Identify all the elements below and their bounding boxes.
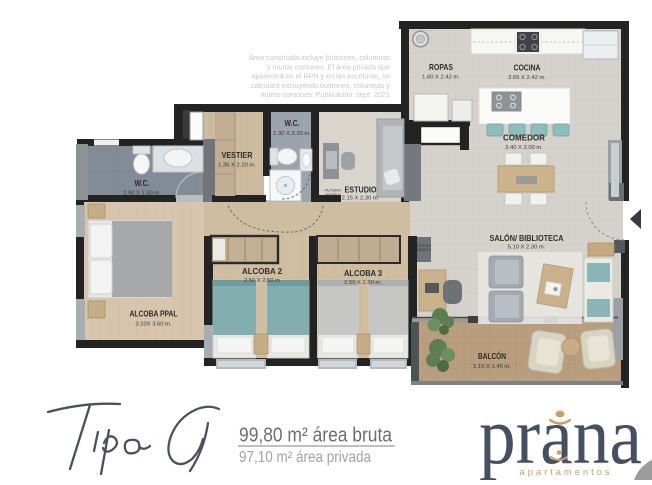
svg-text:3.65 X 2.42 m.: 3.65 X 2.42 m. <box>508 75 546 81</box>
svg-text:3.10X 3.60 m.: 3.10X 3.60 m. <box>135 322 171 328</box>
svg-text:99,80 m² área bruta: 99,80 m² área bruta <box>239 425 393 447</box>
svg-text:2.50 X 2.50 m: 2.50 X 2.50 m <box>244 278 280 284</box>
svg-text:y muros comunes. El área priv: y muros comunes. El área privada que <box>267 62 390 71</box>
svg-text:ESTUDIO: ESTUDIO <box>345 186 378 195</box>
svg-text:W.C.: W.C. <box>285 119 300 128</box>
svg-text:MUEBLE: MUEBLE <box>417 248 432 252</box>
svg-text:MUEBLE: MUEBLE <box>325 193 341 197</box>
svg-text:1.60 X 2.42 m.: 1.60 X 2.42 m. <box>422 75 460 81</box>
svg-text:3.40 X 2.00 m.: 3.40 X 2.00 m. <box>505 145 543 151</box>
svg-text:97,10 m² área privada: 97,10 m² área privada <box>239 449 371 466</box>
svg-text:apartamentos: apartamentos <box>520 467 613 478</box>
svg-text:5.10 X 1.45 m.: 5.10 X 1.45 m. <box>473 364 511 370</box>
svg-text:W.C.: W.C. <box>135 179 150 188</box>
svg-text:1.36 X 2.20 m.: 1.36 X 2.20 m. <box>218 163 256 169</box>
svg-text:5.10 X 2.30 m.: 5.10 X 2.30 m. <box>508 245 546 251</box>
svg-text:ROPAS: ROPAS <box>429 63 453 72</box>
svg-text:aparecerá en el RPH y en las e: aparecerá en el RPH y en las escrituras,… <box>251 72 390 81</box>
svg-text:VESTIER: VESTIER <box>222 151 253 160</box>
svg-text:2.90 X 1.30 m.: 2.90 X 1.30 m. <box>123 191 161 197</box>
svg-text:ALCOBA PPAL: ALCOBA PPAL <box>130 310 178 319</box>
svg-text:muros comunes. Publicación: se: muros comunes. Publicación: sept. 2021 <box>261 90 390 99</box>
svg-text:calculará excluyendo buitrone: calculará excluyendo buitrones, columnas… <box>251 81 390 90</box>
svg-text:ALCOBA 3: ALCOBA 3 <box>344 269 382 278</box>
svg-text:SALÓN/ BIBLIOTECA: SALÓN/ BIBLIOTECA <box>490 232 564 243</box>
svg-text:1.30 X 2.20 m.: 1.30 X 2.20 m. <box>273 131 311 137</box>
svg-text:ALCOBA 2: ALCOBA 2 <box>242 267 282 276</box>
svg-text:COMEDOR: COMEDOR <box>503 134 545 143</box>
svg-text:COCINA: COCINA <box>514 64 541 73</box>
svg-text:2.15 X 2.30 m.: 2.15 X 2.30 m. <box>342 196 380 202</box>
svg-text:Área construida incluye buitro: Área construida incluye buitrones, colum… <box>249 53 390 62</box>
svg-text:BALCÓN: BALCÓN <box>478 350 506 361</box>
svg-text:2.50 X 2.50 m.: 2.50 X 2.50 m. <box>344 280 382 286</box>
svg-text:FUTURO: FUTURO <box>325 189 341 193</box>
